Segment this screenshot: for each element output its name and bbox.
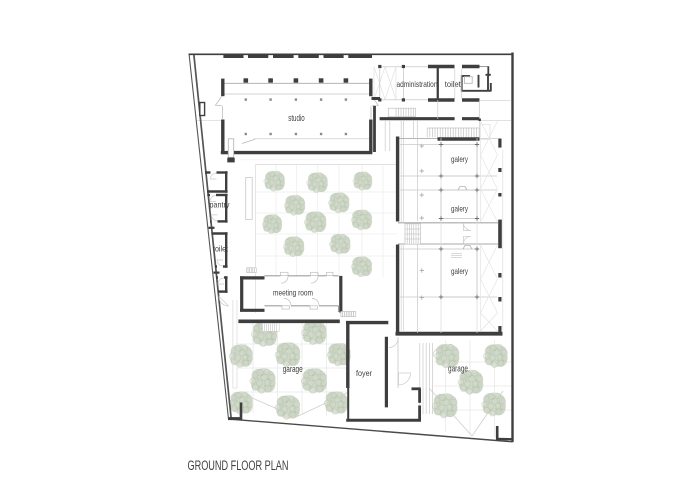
svg-text:foyer: foyer bbox=[356, 368, 372, 378]
svg-text:garage: garage bbox=[283, 364, 303, 374]
svg-text:administration: administration bbox=[397, 79, 438, 89]
svg-text:galery: galery bbox=[451, 204, 469, 214]
svg-text:galery: galery bbox=[451, 266, 469, 276]
svg-text:GROUND FLOOR PLAN: GROUND FLOOR PLAN bbox=[188, 458, 289, 474]
svg-text:pantry: pantry bbox=[210, 200, 231, 210]
svg-text:toilet: toilet bbox=[445, 79, 462, 89]
svg-text:studio: studio bbox=[288, 113, 305, 123]
svg-text:garage: garage bbox=[448, 364, 468, 374]
svg-text:toilet: toilet bbox=[213, 244, 229, 254]
svg-text:galery: galery bbox=[451, 154, 469, 164]
svg-text:meeting room: meeting room bbox=[273, 288, 313, 298]
